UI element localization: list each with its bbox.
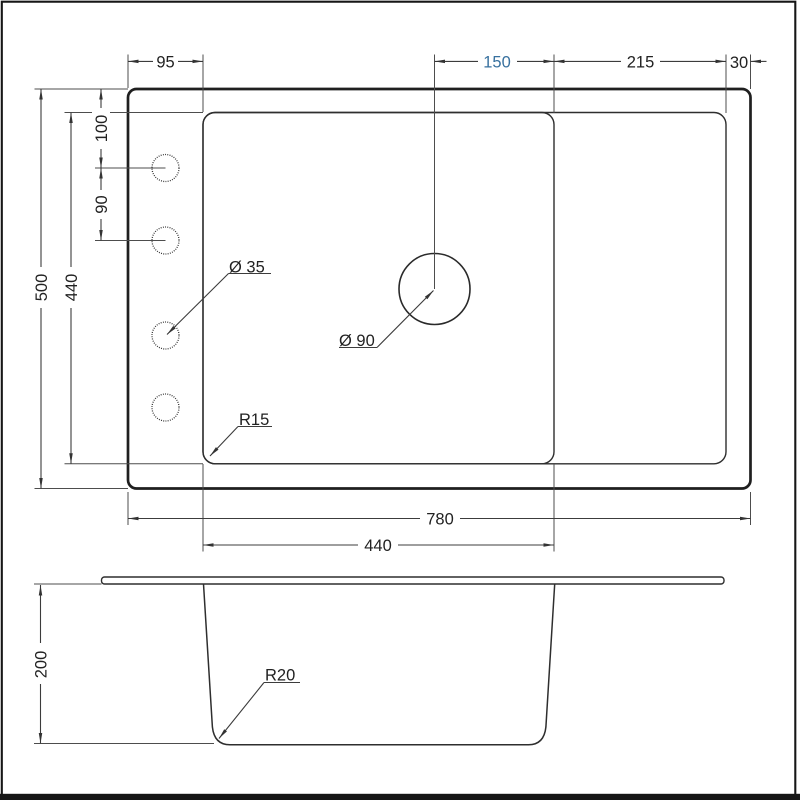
svg-text:100: 100 <box>93 115 111 143</box>
svg-text:200: 200 <box>33 651 51 679</box>
svg-text:780: 780 <box>426 511 454 529</box>
svg-text:30: 30 <box>730 54 748 72</box>
svg-text:90: 90 <box>93 195 111 213</box>
svg-text:150: 150 <box>483 54 511 72</box>
svg-text:440: 440 <box>63 274 81 302</box>
svg-text:R20: R20 <box>265 667 295 685</box>
svg-text:440: 440 <box>364 537 392 555</box>
svg-text:500: 500 <box>33 274 51 302</box>
svg-text:215: 215 <box>627 54 655 72</box>
svg-text:95: 95 <box>156 54 174 72</box>
